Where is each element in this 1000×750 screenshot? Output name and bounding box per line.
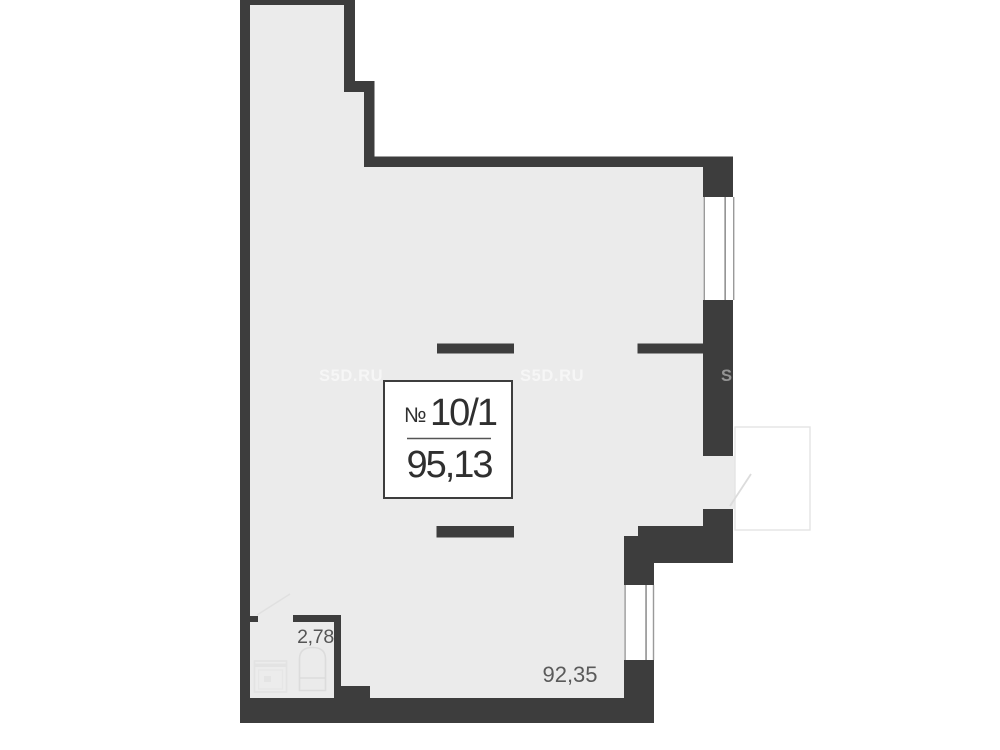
svg-text:95,13: 95,13 bbox=[406, 444, 492, 486]
svg-text:92,35: 92,35 bbox=[542, 662, 597, 687]
svg-text:S5D.RU: S5D.RU bbox=[520, 367, 584, 385]
svg-text:№: № bbox=[404, 404, 427, 427]
svg-text:2,78: 2,78 bbox=[297, 626, 334, 648]
svg-text:10/1: 10/1 bbox=[430, 392, 497, 434]
svg-text:S5D.RU: S5D.RU bbox=[319, 367, 383, 385]
svg-text:S5D.RU: S5D.RU bbox=[721, 367, 785, 385]
